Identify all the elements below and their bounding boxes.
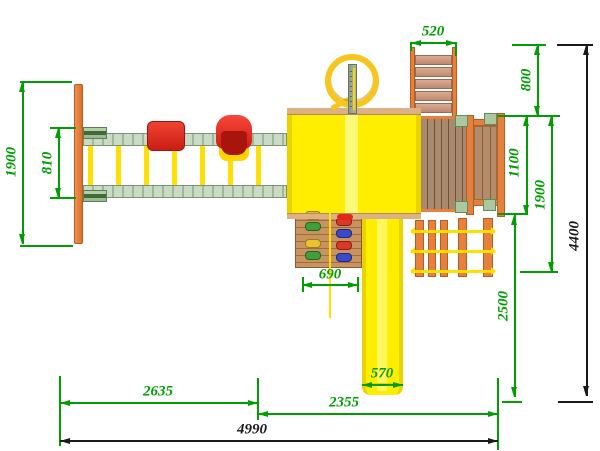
ladder-rung	[415, 79, 452, 89]
climb-hold-red	[336, 241, 352, 250]
ext-line	[50, 127, 76, 129]
dim-slide-run-line	[514, 215, 516, 397]
climb-hold-green	[305, 251, 321, 260]
dim-swing-length: 2635	[143, 385, 173, 400]
bench-post-right	[497, 113, 505, 217]
dim-deck-depth-line	[526, 116, 528, 215]
corner-post	[455, 201, 468, 213]
swing-beam-bottom	[83, 185, 287, 198]
tower-roof	[287, 115, 421, 213]
ext-line	[59, 376, 61, 446]
swing-seat-flat	[147, 121, 185, 151]
ext-line	[558, 401, 593, 403]
corner-post	[484, 113, 497, 125]
dim-platform-depth-line	[551, 116, 553, 272]
ext-line	[50, 197, 76, 199]
ext-line	[20, 245, 73, 247]
dim-swing-frame-depth-line	[22, 82, 24, 244]
dim-deck-depth: 1100	[508, 148, 523, 177]
bench-planks	[474, 126, 497, 200]
ladder-rail-right	[452, 47, 457, 118]
swing-bracket-top	[83, 127, 107, 139]
wall-centerline	[329, 213, 331, 318]
roof-edge-right	[416, 115, 421, 213]
dim-ladder-offset: 800	[520, 69, 535, 92]
dim-tower-length: 2355	[329, 396, 359, 411]
dim-slide-run: 2500	[497, 291, 512, 321]
dim-total-depth: 4400	[568, 221, 583, 251]
net-rope	[411, 250, 495, 253]
swing-bracket-bottom	[83, 190, 107, 202]
dim-tower-length-line	[258, 413, 498, 415]
dim-slide-width: 570	[371, 367, 394, 382]
net-rope	[411, 270, 495, 273]
climb-hold-blue	[336, 253, 352, 262]
dim-beam-spacing: 810	[41, 152, 56, 175]
pole-yellow-line	[353, 68, 355, 110]
climb-hold-green	[305, 222, 321, 231]
tower-roof-back-edge	[287, 213, 421, 219]
swing-beam-top	[83, 133, 287, 146]
net-plank	[428, 220, 436, 277]
ext-line	[512, 44, 546, 46]
ext-line	[502, 401, 522, 403]
dim-total-length-line	[60, 440, 498, 442]
net-plank	[415, 220, 424, 277]
corner-post	[455, 115, 468, 127]
dim-ladder-width: 520	[422, 25, 445, 40]
dim-total-depth-line	[586, 45, 588, 396]
swing-seat-bucket	[216, 115, 252, 163]
dim-platform-depth: 1900	[534, 180, 549, 210]
dim-total-length: 4990	[237, 423, 267, 438]
climb-hold-yellow	[305, 239, 321, 248]
ext-line	[20, 81, 72, 83]
dim-wall-width: 690	[319, 268, 342, 283]
tower-handle	[337, 214, 353, 220]
climb-hold-blue	[336, 229, 352, 238]
bucket-inner	[221, 131, 247, 155]
pole-ticks	[350, 67, 352, 111]
net-plank	[458, 218, 467, 277]
dim-swing-frame-depth: 1900	[5, 147, 20, 177]
deck-planks	[421, 116, 466, 212]
dim-swing-length-line	[60, 402, 258, 404]
ladder-rung	[415, 55, 452, 65]
net-plank	[440, 220, 448, 277]
playground-top-view-drawing: 1900 810 520 800 1100 1900 2500 4400 690…	[0, 0, 600, 451]
bench-post-left	[466, 115, 474, 215]
net-rope	[411, 230, 495, 233]
ladder-rung	[415, 67, 452, 77]
ladder-rung	[415, 91, 452, 101]
roof-ridge	[345, 115, 358, 213]
roof-edge-left	[287, 115, 292, 213]
corner-post	[483, 199, 496, 211]
ring-pole	[348, 64, 357, 114]
swing-a-frame-plank	[74, 84, 83, 244]
